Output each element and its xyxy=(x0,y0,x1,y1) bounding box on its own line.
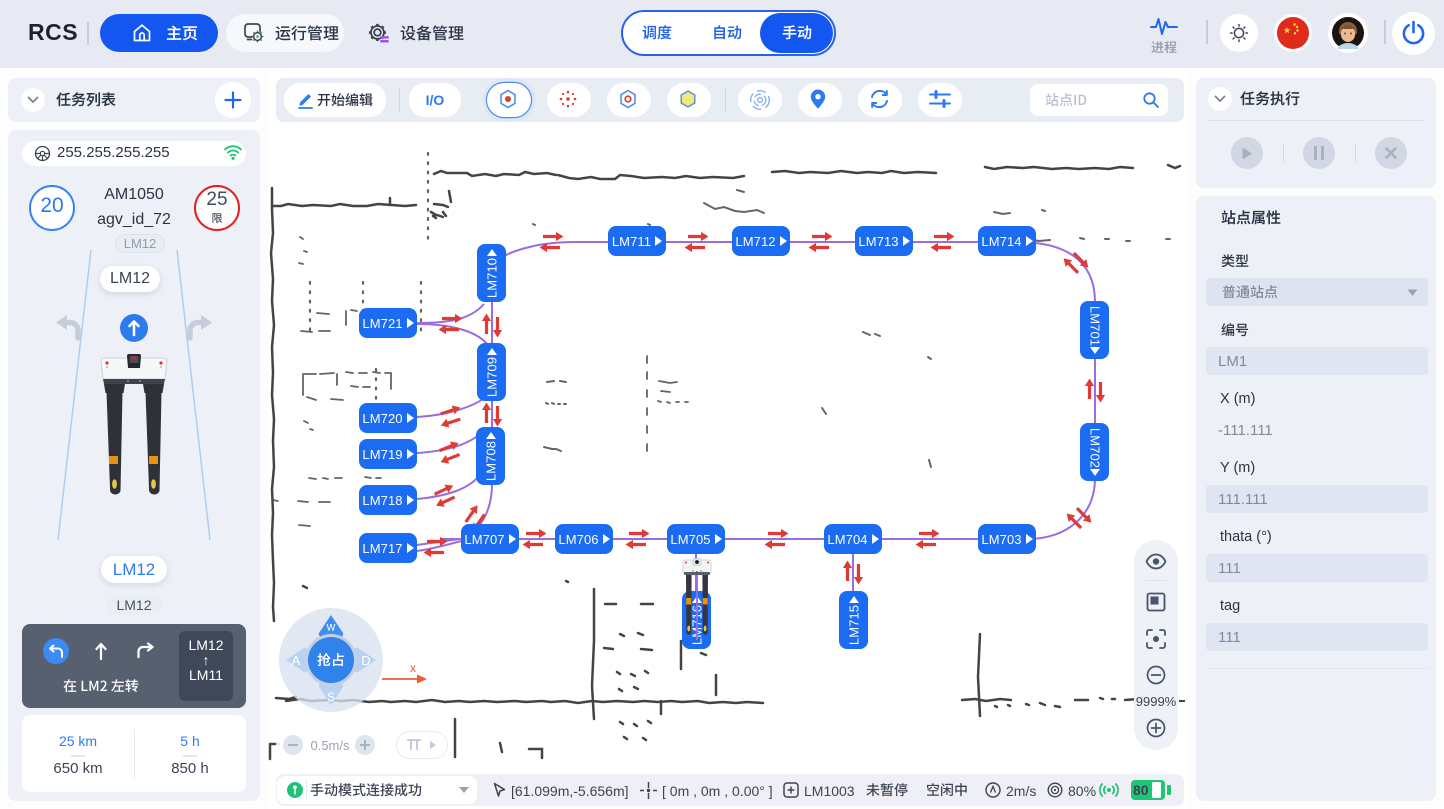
svg-text:S: S xyxy=(327,690,335,704)
svg-text:A: A xyxy=(292,653,301,668)
svg-text:x: x xyxy=(410,661,416,675)
svg-text:w: w xyxy=(326,620,336,634)
svg-text:D: D xyxy=(361,653,370,668)
